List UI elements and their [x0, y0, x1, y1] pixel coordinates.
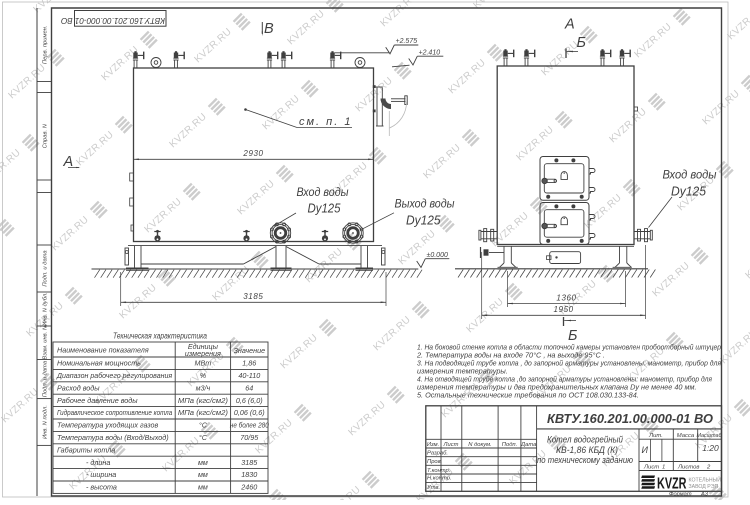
svg-text:Подп.: Подп. — [502, 442, 517, 448]
svg-text:1950: 1950 — [553, 305, 573, 314]
svg-text:мм: мм — [198, 458, 208, 467]
svg-text:МПа (кгс/см2): МПа (кгс/см2) — [178, 396, 228, 405]
svg-text:Н.контр.: Н.контр. — [427, 476, 452, 482]
svg-text:Значение: Значение — [234, 346, 266, 355]
svg-text:Вход воды: Вход воды — [663, 170, 718, 182]
svg-text:2460: 2460 — [240, 483, 257, 492]
svg-text:Изм.: Изм. — [427, 442, 439, 448]
svg-text:КВТУ.160.201.00.000-01 ВО: КВТУ.160.201.00.000-01 ВО — [547, 411, 713, 426]
svg-text:МПа (кгс/см2): МПа (кгс/см2) — [178, 408, 228, 417]
svg-text:Гидравлическое сопротивление к: Гидравлическое сопротивление котла — [57, 408, 172, 417]
svg-text:Подп. и дата: Подп. и дата — [43, 250, 49, 287]
svg-text:Масштаб: Масштаб — [697, 433, 723, 439]
svg-text:Температура уходящих газов: Температура уходящих газов — [57, 421, 159, 430]
svg-text:+2.575: +2.575 — [396, 38, 418, 45]
svg-text:Dy125: Dy125 — [308, 201, 341, 215]
svg-text:КВ-1,86 КБД (К): КВ-1,86 КБД (К) — [556, 445, 618, 455]
svg-text:Т.контр.: Т.контр. — [427, 468, 450, 474]
svg-text:Расход воды: Расход воды — [57, 383, 100, 392]
svg-text:мм: мм — [198, 470, 208, 479]
svg-text:0,6 (6,0): 0,6 (6,0) — [236, 396, 263, 405]
svg-text:Техническая характеристика: Техническая характеристика — [113, 332, 207, 341]
svg-text:- ширина: - ширина — [86, 470, 116, 479]
svg-text:2930: 2930 — [242, 149, 263, 158]
svg-text:3185: 3185 — [243, 292, 263, 301]
svg-text:Утв.: Утв. — [426, 485, 440, 491]
svg-text:Пров.: Пров. — [427, 459, 442, 465]
svg-text:Подп. и дата: Подп. и дата — [43, 360, 49, 397]
svg-text:- высота: - высота — [86, 483, 117, 492]
svg-text:Dy125: Dy125 — [406, 212, 441, 227]
svg-text:КОТЕЛЬНЫЙ: КОТЕЛЬНЫЙ — [689, 476, 722, 484]
svg-text:2: 2 — [706, 464, 711, 470]
svg-text:ЗАВОД РЭП: ЗАВОД РЭП — [689, 484, 719, 490]
svg-text:+2.410: +2.410 — [419, 49, 441, 56]
svg-text:Справ. N: Справ. N — [43, 123, 49, 148]
svg-text:Габариты котла: Габариты котла — [57, 445, 115, 454]
svg-text:Разраб.: Разраб. — [427, 451, 448, 457]
svg-text:%: % — [200, 371, 207, 380]
svg-text:Вход воды: Вход воды — [297, 187, 349, 199]
svg-text:Лист: Лист — [443, 442, 459, 448]
svg-text:40-110: 40-110 — [238, 371, 260, 380]
svg-text:°С: °С — [199, 421, 208, 430]
svg-text:измерения: измерения — [185, 349, 221, 358]
svg-text:Температура воды (Вход/Выход): Температура воды (Вход/Выход) — [57, 433, 169, 442]
svg-text:°С: °С — [199, 433, 208, 442]
svg-text:Листов: Листов — [677, 464, 699, 470]
svg-text:1360: 1360 — [556, 293, 576, 302]
svg-text:м3/ч: м3/ч — [196, 383, 211, 392]
svg-text:Диапазон рабочего регулировани: Диапазон рабочего регулирования — [56, 371, 172, 380]
svg-text:не более 280: не более 280 — [230, 421, 269, 430]
svg-text:Инв. N подл.: Инв. N подл. — [43, 405, 49, 439]
svg-text:- длина: - длина — [86, 458, 110, 467]
svg-text:Номинальная мощность: Номинальная мощность — [57, 359, 141, 368]
svg-text:Dy125: Dy125 — [671, 184, 707, 199]
svg-text:Инв. N дубл.: Инв. N дубл. — [43, 292, 49, 326]
svg-text:Наименование показателя: Наименование показателя — [57, 346, 149, 355]
svg-text:мм: мм — [198, 483, 208, 492]
svg-text:КВТУ.160.201.00.000-01 ВО: КВТУ.160.201.00.000-01 ВО — [60, 16, 165, 26]
svg-text:Перв. примен.: Перв. примен. — [43, 26, 49, 65]
svg-text:1830: 1830 — [241, 470, 257, 479]
svg-text:И: И — [641, 445, 648, 455]
svg-text:Взам. инв. N: Взам. инв. N — [43, 325, 49, 360]
svg-text:Б: Б — [577, 35, 586, 51]
svg-text:Лит.: Лит. — [648, 433, 663, 439]
svg-text:Выход воды: Выход воды — [395, 199, 455, 211]
svg-text:1:20: 1:20 — [702, 443, 719, 453]
svg-text:0,06 (0,6): 0,06 (0,6) — [234, 408, 265, 417]
svg-text:Масса: Масса — [677, 433, 695, 439]
svg-text:3185: 3185 — [241, 458, 258, 467]
svg-text:±0.000: ±0.000 — [427, 252, 448, 259]
svg-text:70/95: 70/95 — [240, 433, 259, 442]
svg-text:Дата: Дата — [520, 442, 537, 448]
svg-text:см. п. 1: см. п. 1 — [299, 116, 352, 128]
svg-text:N докум.: N докум. — [468, 442, 491, 448]
svg-text:KVZR: KVZR — [657, 476, 687, 493]
svg-text:5. Остальные технические треб: 5. Остальные технические требования по О… — [417, 391, 639, 400]
svg-text:Формат: Формат — [669, 492, 692, 498]
svg-text:1: 1 — [662, 464, 665, 470]
svg-text:В: В — [264, 21, 274, 37]
svg-text:Рабочее давление воды: Рабочее давление воды — [57, 396, 138, 405]
svg-text:по техническому заданию: по техническому заданию — [537, 455, 633, 465]
svg-text:64: 64 — [245, 383, 253, 392]
svg-text:МВт: МВт — [195, 359, 212, 368]
svg-text:А: А — [564, 17, 575, 33]
svg-text:1,86: 1,86 — [242, 359, 256, 368]
svg-text:Лист: Лист — [643, 464, 659, 470]
svg-text:Котел водогрейный: Котел водогрейный — [547, 435, 623, 445]
svg-text:А3: А3 — [700, 492, 709, 498]
